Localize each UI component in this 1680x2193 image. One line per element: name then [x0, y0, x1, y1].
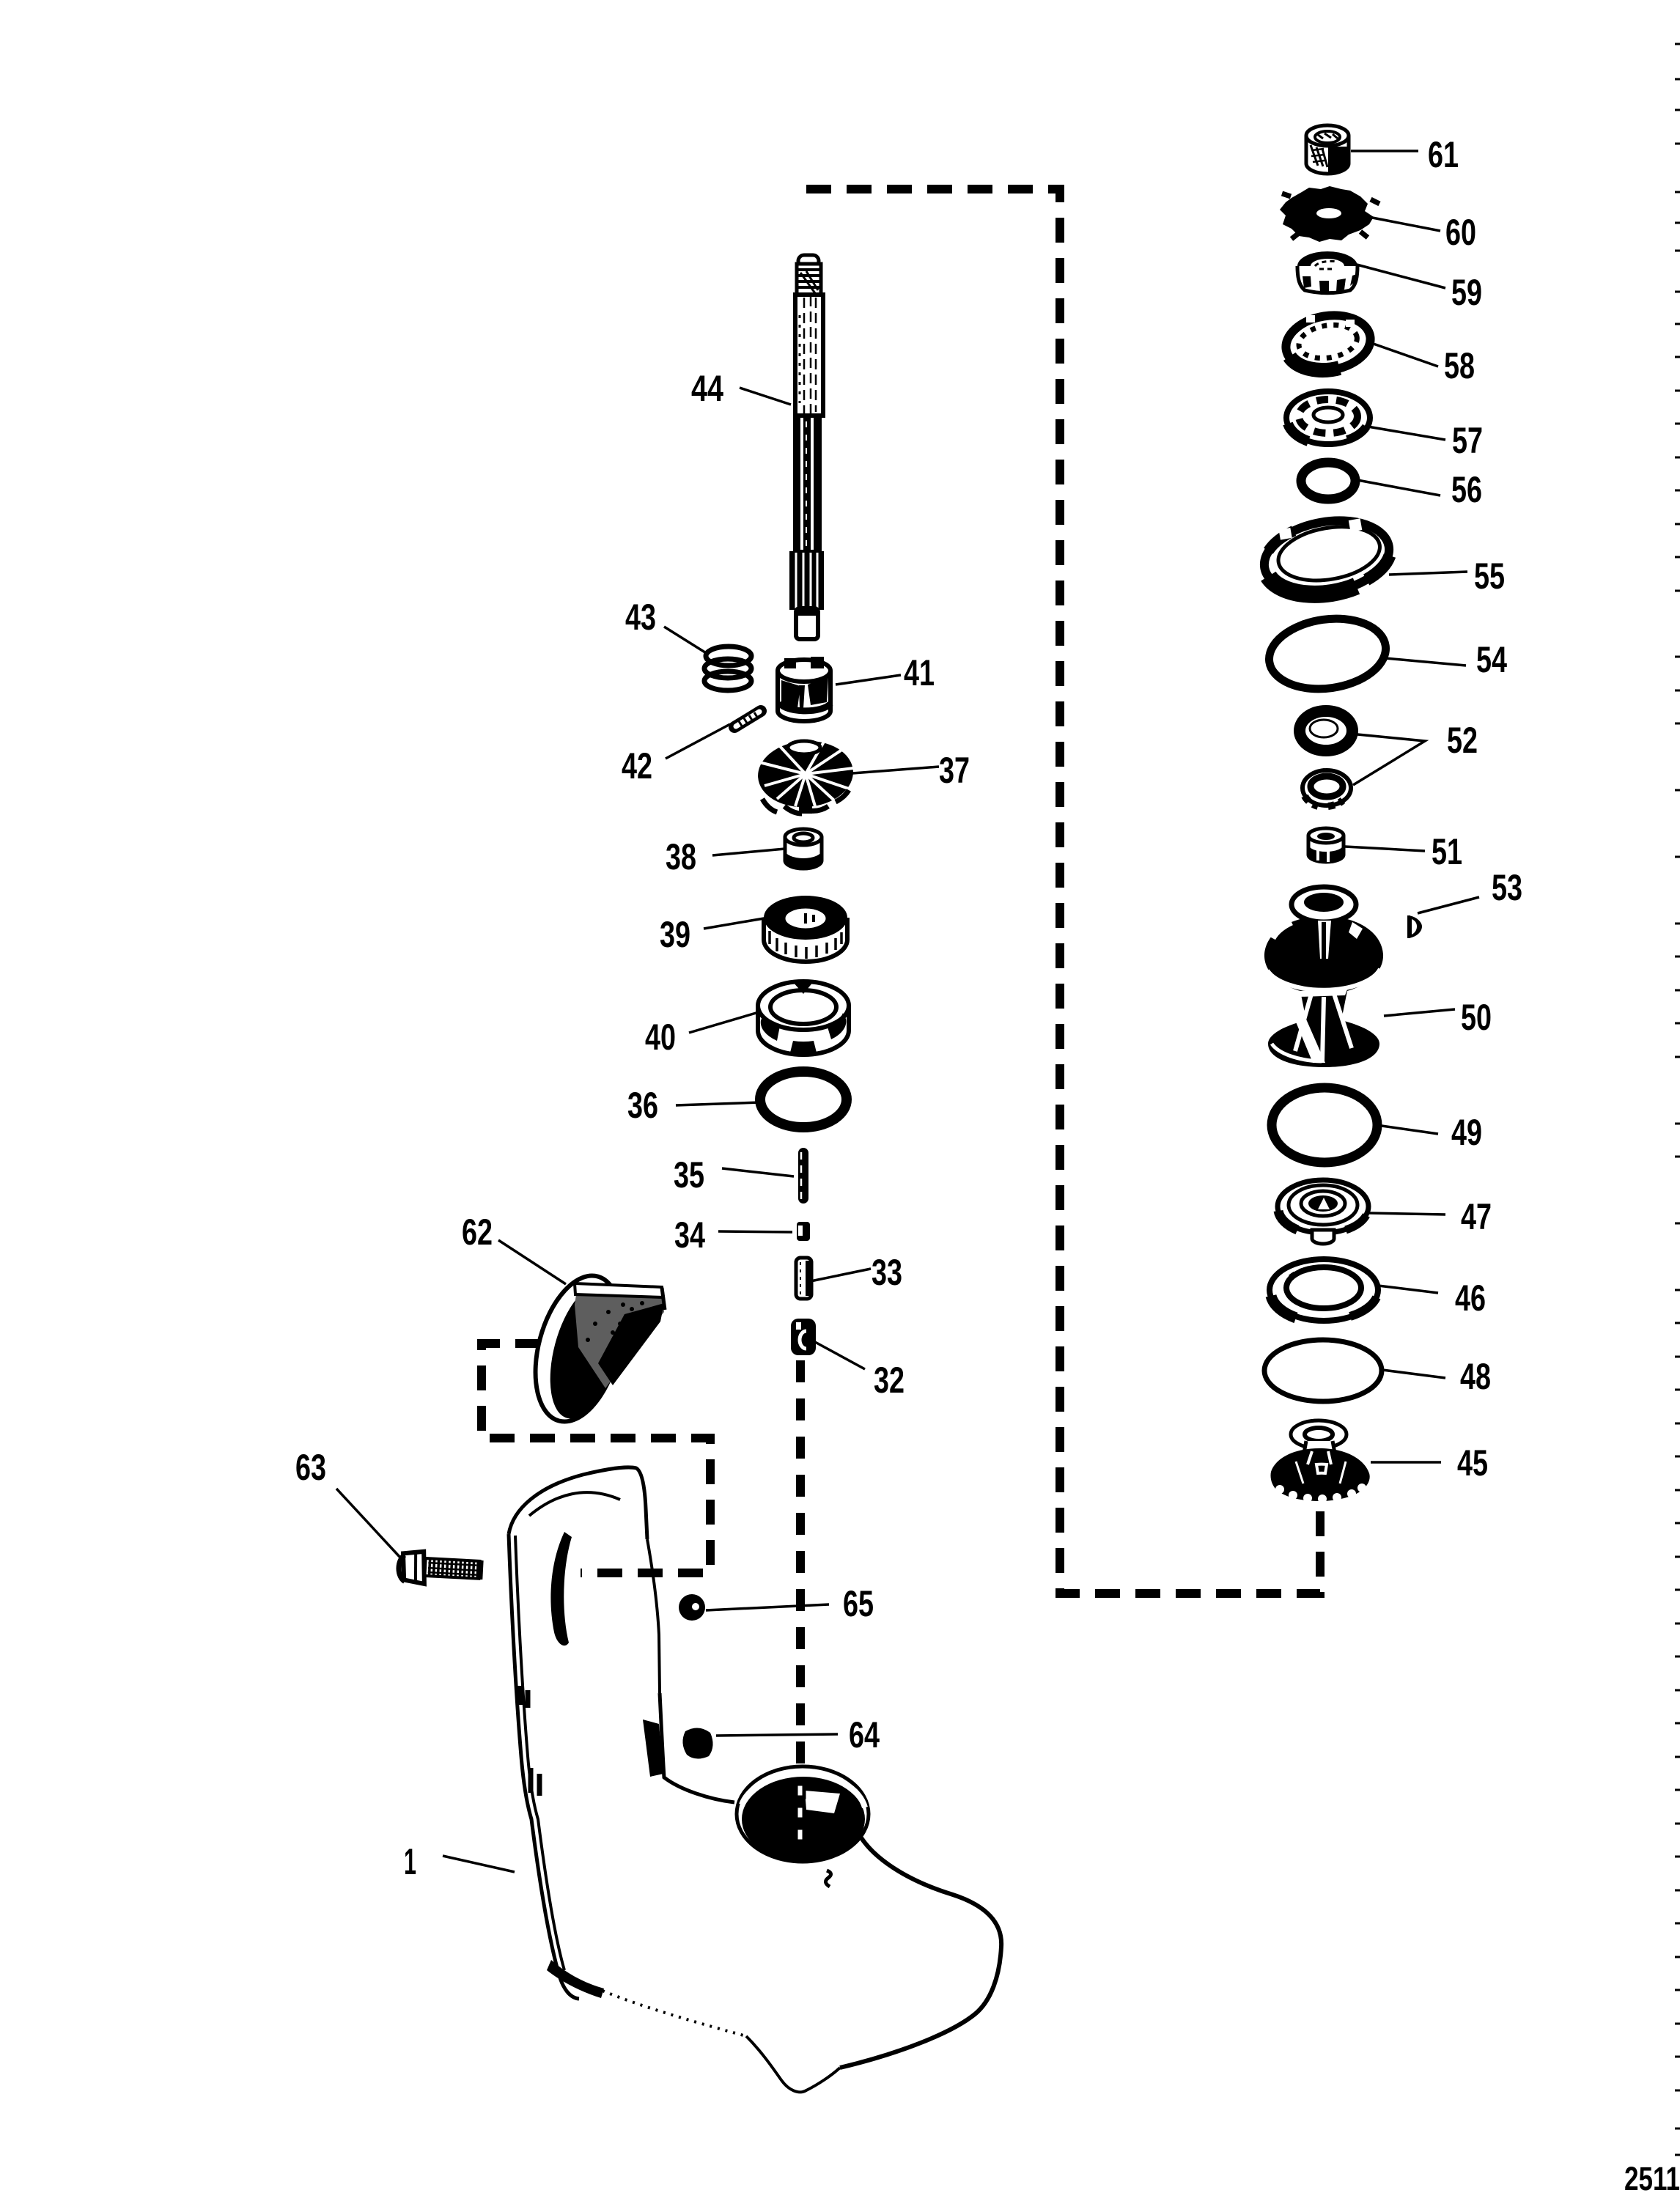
svg-text:33: 33 — [872, 1252, 902, 1293]
svg-text:62: 62 — [462, 1212, 493, 1253]
svg-text:36: 36 — [627, 1085, 658, 1126]
svg-text:57: 57 — [1452, 420, 1483, 461]
svg-text:64: 64 — [849, 1714, 880, 1755]
svg-text:55: 55 — [1474, 556, 1505, 597]
svg-text:52: 52 — [1447, 720, 1478, 761]
svg-text:49: 49 — [1451, 1112, 1482, 1153]
svg-text:47: 47 — [1461, 1196, 1492, 1237]
svg-text:1: 1 — [404, 1841, 416, 1882]
svg-text:59: 59 — [1451, 272, 1482, 313]
svg-text:39: 39 — [660, 914, 690, 955]
svg-text:44: 44 — [691, 368, 723, 409]
svg-text:58: 58 — [1444, 345, 1475, 386]
svg-text:51: 51 — [1432, 831, 1462, 872]
svg-text:63: 63 — [295, 1447, 326, 1488]
svg-text:42: 42 — [622, 745, 652, 786]
svg-text:48: 48 — [1460, 1356, 1491, 1397]
svg-text:37: 37 — [939, 750, 970, 791]
svg-text:40: 40 — [645, 1017, 676, 1058]
svg-text:53: 53 — [1492, 867, 1522, 908]
svg-text:38: 38 — [666, 836, 696, 877]
svg-text:32: 32 — [874, 1360, 905, 1401]
svg-text:34: 34 — [674, 1215, 705, 1256]
svg-text:45: 45 — [1457, 1442, 1488, 1483]
svg-text:2511: 2511 — [1624, 2160, 1680, 2193]
svg-text:61: 61 — [1428, 134, 1459, 175]
svg-text:46: 46 — [1455, 1278, 1486, 1319]
svg-text:50: 50 — [1461, 997, 1492, 1038]
svg-text:60: 60 — [1445, 212, 1476, 253]
svg-text:65: 65 — [843, 1583, 874, 1624]
svg-text:43: 43 — [625, 597, 656, 638]
svg-text:41: 41 — [904, 652, 935, 693]
svg-text:54: 54 — [1476, 639, 1507, 680]
svg-text:56: 56 — [1451, 469, 1482, 510]
svg-text:35: 35 — [674, 1154, 704, 1195]
